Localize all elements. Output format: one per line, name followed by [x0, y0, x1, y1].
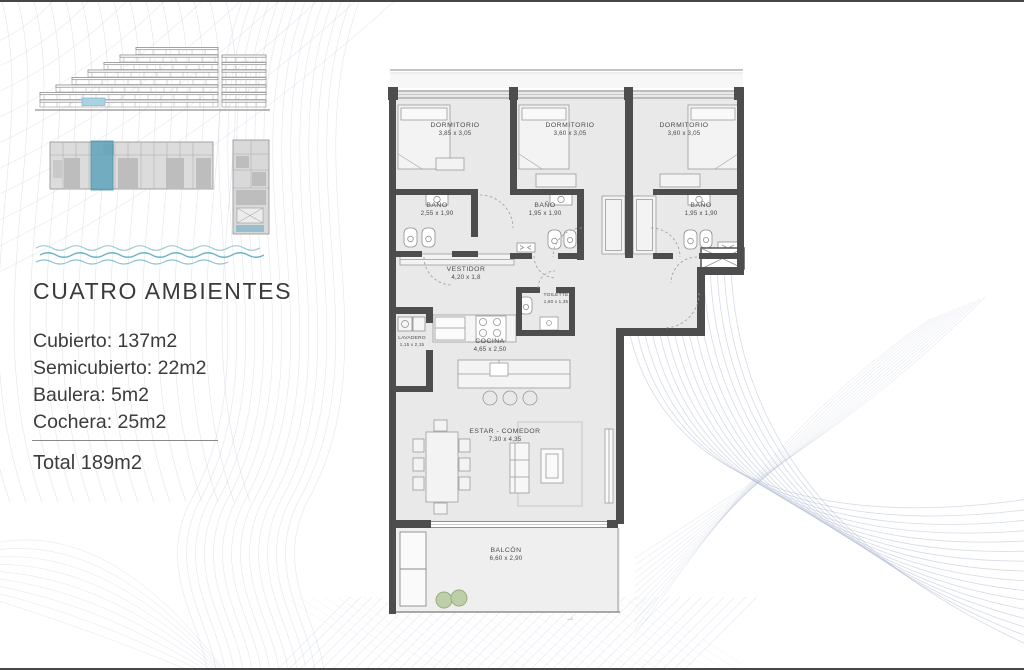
room-label-bano-1: BAÑO 2,55 x 1,90 — [421, 202, 454, 217]
room-label-dormitorio-3: DORMITORIO 3,60 x 3,05 — [659, 122, 708, 137]
room-label-cocina: COCINA 4,65 x 2,50 — [474, 338, 507, 353]
floor-plan — [0, 2, 1024, 670]
room-label-bano-2: BAÑO 1,95 x 1,90 — [529, 202, 562, 217]
brochure-page: CUATRO AMBIENTES Cubierto: 137m2 Semicub… — [0, 0, 1024, 670]
room-label-toilette: TOILETTE 1,60 x 1,35 — [544, 293, 569, 304]
room-label-dormitorio-1: DORMITORIO 3,85 x 3,05 — [430, 122, 479, 137]
room-label-lavadero: LAVADERO 1,15 x 2,15 — [398, 336, 426, 347]
room-label-bano-3: BAÑO 1,95 x 1,90 — [685, 202, 718, 217]
plant-icon — [436, 592, 452, 608]
room-label-dormitorio-2: DORMITORIO 3,60 x 3,05 — [545, 122, 594, 137]
room-label-balcon: BALCÓN 6,60 x 2,90 — [490, 547, 523, 562]
room-label-vestidor: VESTIDOR 4,20 x 1,8 — [447, 266, 486, 281]
plant-icon — [451, 590, 467, 606]
room-label-estar-comedor: ESTAR - COMEDOR 7,30 x 4,35 — [469, 428, 540, 443]
